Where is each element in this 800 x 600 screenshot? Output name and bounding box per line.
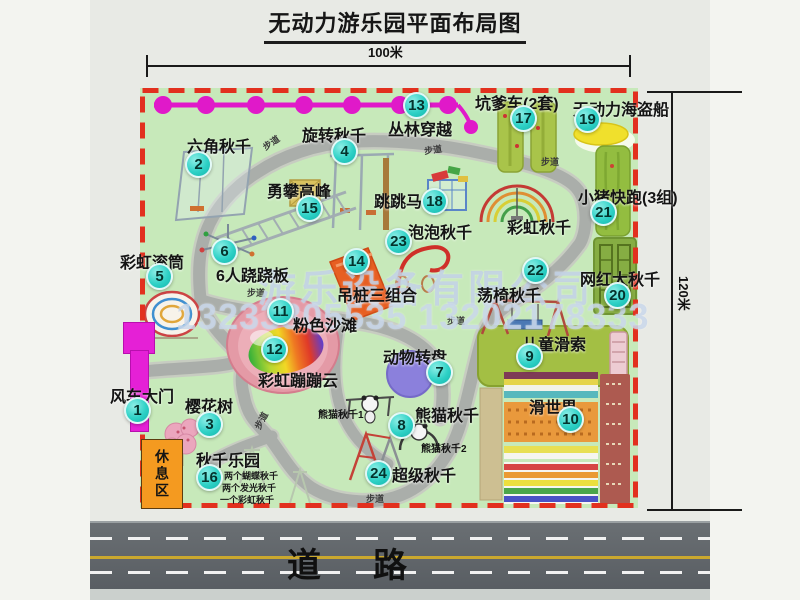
badge-1: 1 [124,397,151,424]
badge-18: 18 [421,188,448,215]
dimension-tick [146,55,148,77]
attraction-label-jumping-horse: 跳跳马 [374,188,422,212]
badge-20: 20 [604,282,631,309]
width-dimension-label: 100米 [368,42,403,61]
attraction-label-bubble-swing: 泡泡秋千 [408,219,472,243]
badge-13: 13 [403,92,430,119]
swing-park-note: 一个彩虹秋千 [220,493,274,506]
badge-10: 10 [557,406,584,433]
badge-24: 24 [365,460,392,487]
rest-area-box: 休息区 [141,439,183,509]
badge-8: 8 [388,412,415,439]
attraction-label-rainbow-cloud: 彩虹蹦蹦云 [258,367,338,391]
badge-3: 3 [196,411,223,438]
park-layout-figure: 无动力游乐园平面布局图 100米 120米 [0,0,800,600]
badge-4: 4 [331,138,358,165]
path-label: 步道 [247,286,265,299]
dimension-tick [629,55,631,77]
road-label: 道路 [287,538,459,587]
badge-15: 15 [296,195,323,222]
path-label: 步道 [541,155,559,168]
panda-swing-1-label: 熊猫秋千1 [318,406,364,421]
attraction-label-chair-swing: 荡椅秋千 [477,282,541,306]
badge-14: 14 [343,248,370,275]
path-label: 步道 [447,314,465,327]
badge-23: 23 [385,228,412,255]
dimension-tick [647,509,742,511]
panda-swing-2-label: 熊猫秋千2 [421,440,467,455]
badge-19: 19 [574,106,601,133]
attraction-label-jungle-crossing: 丛林穿越 [388,116,452,140]
attraction-label-super-swing: 超级秋千 [392,462,456,486]
badge-12: 12 [261,336,288,363]
road-curb [90,589,710,600]
top-dimension-line [147,65,631,67]
badge-6: 6 [211,238,238,265]
attraction-label-seesaw: 6人跷跷板 [216,262,289,286]
badge-21: 21 [590,199,617,226]
badge-22: 22 [522,257,549,284]
height-dimension-label: 120米 [675,276,694,311]
path-label: 步道 [423,142,443,157]
attraction-label-hanging-pile: 吊桩三组合 [337,282,417,306]
attraction-label-rainbow-swing: 彩虹秋千 [507,214,571,238]
badge-9: 9 [516,343,543,370]
badge-7: 7 [426,359,453,386]
badge-11: 11 [267,298,294,325]
dimension-tick [647,91,742,93]
road: 道路 [90,521,710,591]
badge-5: 5 [146,263,173,290]
badge-16: 16 [196,464,223,491]
page-title: 无动力游乐园平面布局图 [240,6,550,44]
slide-world-area [480,372,630,504]
right-dimension-line [671,92,673,511]
attraction-label-panda-swing: 熊猫秋千 [415,402,479,426]
badge-2: 2 [185,151,212,178]
path-label: 步道 [366,492,384,505]
badge-17: 17 [510,105,537,132]
attraction-label-pink-beach: 粉色沙滩 [293,312,357,336]
